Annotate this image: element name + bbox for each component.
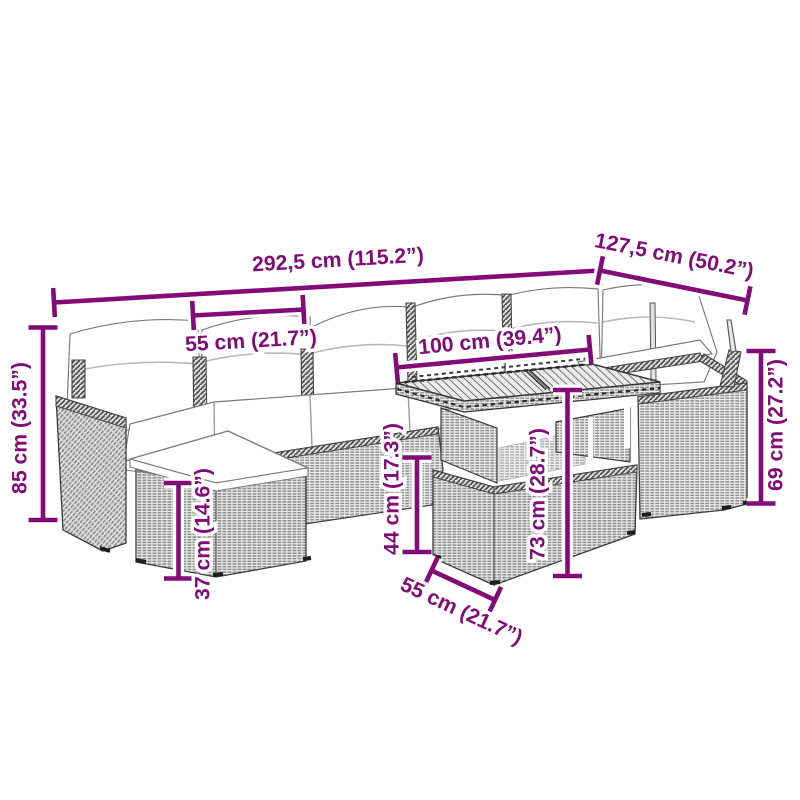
svg-text:69 cm (27.2”): 69 cm (27.2”): [765, 359, 788, 491]
svg-text:44 cm (17.3”): 44 cm (17.3”): [381, 423, 404, 555]
svg-text:37 cm (14.6”): 37 cm (14.6”): [192, 468, 215, 600]
svg-text:73 cm (28.7”): 73 cm (28.7”): [527, 428, 550, 560]
svg-text:85 cm (33.5”): 85 cm (33.5”): [9, 362, 32, 494]
